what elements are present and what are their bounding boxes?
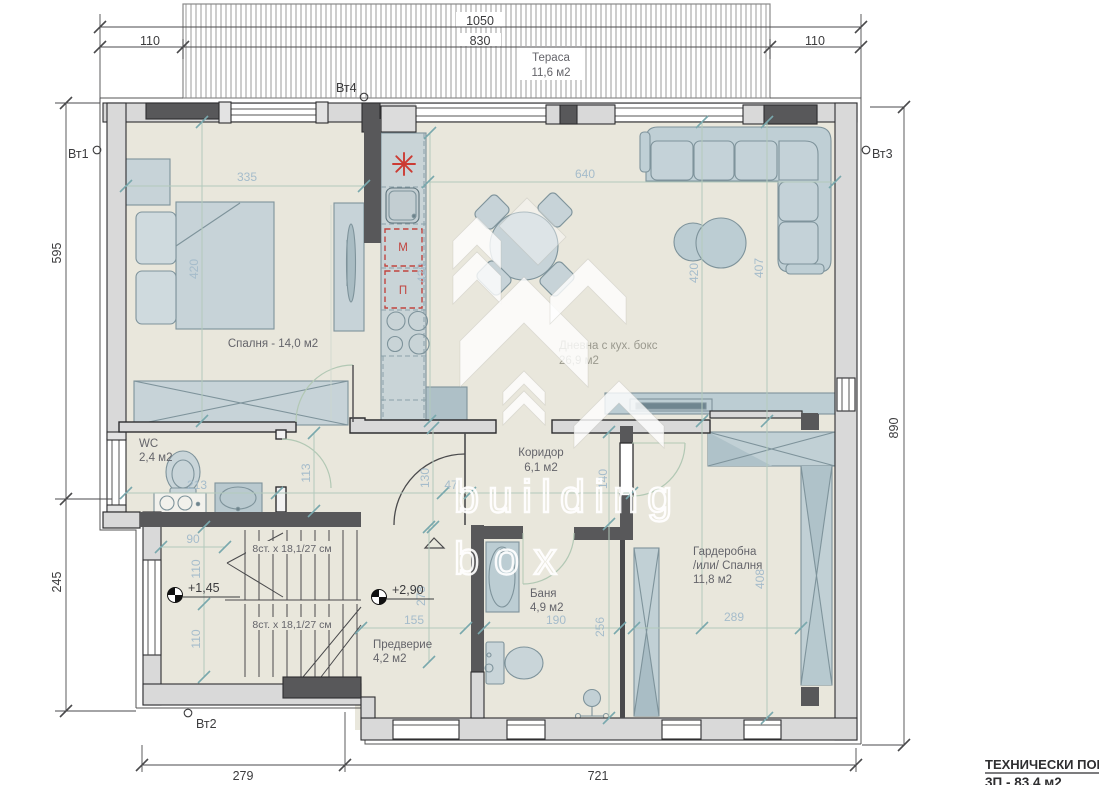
svg-text:721: 721 <box>588 769 609 783</box>
svg-text:8ст. х 18,1/27 см: 8ст. х 18,1/27 см <box>252 619 331 631</box>
svg-text:Вт4: Вт4 <box>336 81 357 95</box>
svg-text:190: 190 <box>546 613 566 627</box>
svg-text:113: 113 <box>299 463 313 482</box>
svg-text:110: 110 <box>140 34 160 48</box>
svg-text:2,4 м2: 2,4 м2 <box>139 452 172 464</box>
svg-text:420: 420 <box>415 263 429 283</box>
svg-text:640: 640 <box>575 167 595 181</box>
svg-text:256: 256 <box>593 617 607 637</box>
svg-text:407: 407 <box>752 258 766 278</box>
svg-text:595: 595 <box>50 243 64 264</box>
svg-text:4,2 м2: 4,2 м2 <box>373 653 406 665</box>
svg-text:830: 830 <box>470 34 491 48</box>
svg-text:ТЕХНИЧЕСКИ ПОК: ТЕХНИЧЕСКИ ПОК <box>985 757 1099 772</box>
svg-text:WC: WC <box>139 438 158 450</box>
svg-text:420: 420 <box>687 263 701 283</box>
svg-text:8ст. х 18,1/27 см: 8ст. х 18,1/27 см <box>252 543 331 555</box>
svg-text:П: П <box>399 285 407 297</box>
svg-text:Коридор: Коридор <box>518 447 563 459</box>
svg-text:+2,90: +2,90 <box>392 583 424 597</box>
svg-text:110: 110 <box>189 629 203 648</box>
svg-text:Вт1: Вт1 <box>68 147 89 161</box>
svg-text:110: 110 <box>805 34 825 48</box>
svg-text:+1,45: +1,45 <box>188 581 220 595</box>
svg-text:Гардеробна: Гардеробна <box>693 546 757 558</box>
svg-text:М: М <box>398 242 408 254</box>
svg-text:11,8 м2: 11,8 м2 <box>693 574 732 586</box>
svg-text:130: 130 <box>418 468 432 488</box>
svg-text:/или/ Спалня: /или/ Спалня <box>693 560 762 572</box>
svg-text:Вт2: Вт2 <box>196 717 217 731</box>
svg-text:213: 213 <box>187 478 207 492</box>
svg-text:building: building <box>454 471 681 522</box>
svg-text:Тераса: Тераса <box>532 52 570 64</box>
svg-text:1050: 1050 <box>466 14 494 28</box>
svg-text:Вт3: Вт3 <box>872 147 893 161</box>
svg-text:420: 420 <box>187 259 201 279</box>
svg-text:155: 155 <box>404 613 424 627</box>
svg-text:245: 245 <box>50 572 64 593</box>
svg-text:279: 279 <box>233 769 254 783</box>
svg-text:335: 335 <box>237 170 257 184</box>
svg-text:3П - 83,4 м2: 3П - 83,4 м2 <box>985 775 1062 785</box>
svg-text:110: 110 <box>189 559 203 578</box>
svg-text:Спалня - 14,0 м2: Спалня - 14,0 м2 <box>228 338 318 350</box>
svg-text:Предверие: Предверие <box>373 639 432 651</box>
svg-text:289: 289 <box>724 610 744 624</box>
svg-text:box: box <box>454 533 572 584</box>
svg-text:890: 890 <box>887 418 901 439</box>
svg-text:11,6 м2: 11,6 м2 <box>531 67 570 79</box>
svg-text:Баня: Баня <box>530 588 557 600</box>
svg-text:4,9 м2: 4,9 м2 <box>530 602 563 614</box>
svg-text:90: 90 <box>186 532 200 546</box>
